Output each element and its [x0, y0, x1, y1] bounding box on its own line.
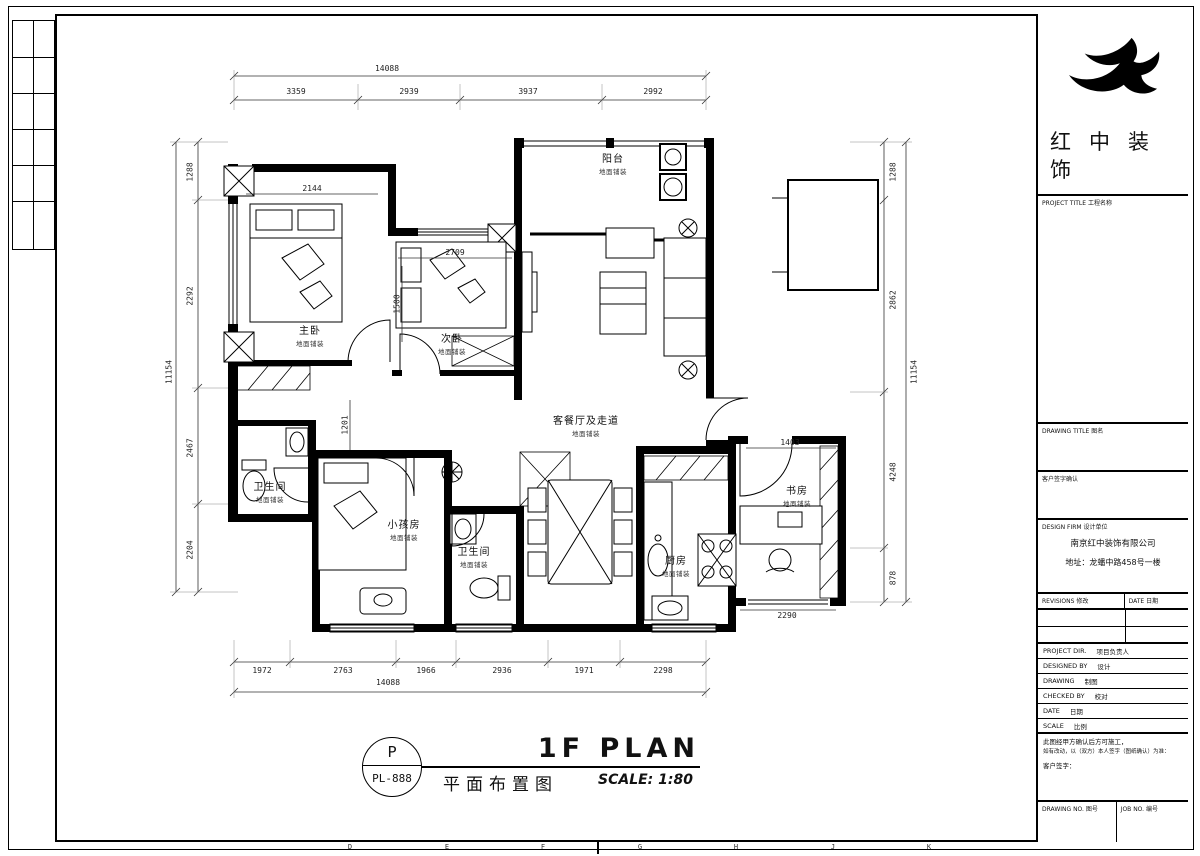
drawing-number: PL-888 — [363, 766, 421, 792]
grid-letter: E — [445, 843, 449, 851]
dim-top-seg: 3937 — [518, 87, 537, 96]
design-firm-label: DESIGN FIRM 设计单位 — [1038, 520, 1188, 531]
dim-interior: 1500 — [393, 294, 402, 313]
furniture — [242, 144, 878, 620]
company-name-logo-line2: 饰 — [1050, 154, 1071, 184]
dim-interior: 1201 — [341, 415, 350, 434]
client-confirm-label: 客户签字确认 — [1038, 472, 1188, 483]
dim-left-seg: 2204 — [186, 540, 195, 559]
info-row-checked-by: CHECKED BY校对 — [1038, 689, 1188, 704]
grid-letter: D — [348, 843, 352, 851]
revision-row — [1038, 610, 1188, 627]
drawing-title-section: DRAWING TITLE 图名 — [1038, 424, 1188, 472]
room-label-bathroom-1: 卫生间地面铺装 — [254, 478, 287, 504]
plan-title-cn: 平面布置图 — [443, 770, 558, 795]
drawing-no-label: DRAWING NO. 图号 — [1038, 802, 1117, 842]
drawing-no-section: DRAWING NO. 图号 JOB NO. 编号 — [1038, 802, 1188, 842]
grid-letter: F — [541, 843, 545, 851]
dim-right-seg: 878 — [889, 571, 898, 585]
info-row-drawing: DRAWING制图 — [1038, 674, 1188, 689]
room-label-kitchen: 厨房地面铺装 — [662, 552, 690, 578]
project-title-label: PROJECT TITLE 工程名称 — [1038, 196, 1188, 207]
company-name-logo-line1: 红中装 — [1050, 126, 1167, 156]
title-block: 红中装 饰 PROJECT TITLE 工程名称 DRAWING TITLE 图… — [1036, 14, 1188, 842]
room-label-balcony: 阳台地面铺装 — [599, 150, 627, 176]
grid-letter: G — [638, 843, 642, 851]
company-address: 地址：龙蟠中路458号一楼 — [1038, 557, 1188, 568]
dim-interior: 2709 — [445, 248, 464, 257]
plan-title: 1F PLAN — [490, 733, 700, 764]
room-label-study: 书房地面铺装 — [783, 482, 811, 508]
dim-left-overall: 11154 — [165, 360, 174, 384]
company-name: 南京红中装饰有限公司 — [1038, 537, 1188, 549]
info-row-scale: SCALE比例 — [1038, 719, 1188, 734]
note-line1: 此图经甲方确认后方可施工， — [1043, 737, 1183, 748]
drawing-sheet: 14088 3359 2939 3937 2992 1972 2763 1966… — [0, 0, 1200, 856]
dim-right-seg: 2862 — [889, 290, 898, 309]
revision-date-label: DATE 日期 — [1125, 594, 1188, 608]
bottom-center-tick — [597, 842, 599, 854]
dim-top-seg: 3359 — [286, 87, 305, 96]
drawing-symbol: P — [363, 738, 421, 766]
revision-row — [1038, 627, 1188, 644]
grid-letter: H — [734, 843, 738, 851]
dim-bottom-seg: 2936 — [492, 666, 511, 675]
job-no-label: JOB NO. 编号 — [1117, 802, 1188, 842]
room-label-second-bedroom: 次卧地面铺装 — [438, 330, 466, 356]
dim-bottom-seg: 2298 — [653, 666, 672, 675]
revisions-header: REVISIONS 修改 DATE 日期 — [1038, 594, 1188, 610]
design-firm-section: DESIGN FIRM 设计单位 南京红中装饰有限公司 地址：龙蟠中路458号一… — [1038, 520, 1188, 594]
dim-top-overall: 14088 — [375, 64, 399, 73]
info-row-date: DATE日期 — [1038, 704, 1188, 719]
room-label-bathroom-2: 卫生间地面铺装 — [458, 543, 491, 569]
logo-section: 红中装 饰 — [1038, 14, 1188, 196]
grid-letter: K — [927, 843, 931, 851]
dim-interior: 2290 — [777, 611, 796, 620]
dim-bottom-seg: 1972 — [252, 666, 271, 675]
room-label-master-bedroom: 主卧地面铺装 — [296, 322, 324, 348]
room-label-living-dining: 客餐厅及走道地面铺装 — [553, 412, 619, 438]
dim-left-seg: 2467 — [186, 438, 195, 457]
drawing-title-label: DRAWING TITLE 图名 — [1038, 424, 1188, 435]
dim-top-seg: 2939 — [399, 87, 418, 96]
dim-bottom-overall: 14088 — [376, 678, 400, 687]
company-logo-icon — [1054, 32, 1174, 120]
dim-interior: 2144 — [302, 184, 321, 193]
dim-bottom-seg: 1971 — [574, 666, 593, 675]
note-line2: 如有改动，以（双方）本人签字（图纸确认）为准： — [1043, 748, 1183, 757]
note-section: 此图经甲方确认后方可施工， 如有改动，以（双方）本人签字（图纸确认）为准： 客户… — [1038, 734, 1188, 802]
dim-interior: 1403 — [780, 438, 799, 447]
dim-left-seg: 2292 — [186, 286, 195, 305]
project-title-section: PROJECT TITLE 工程名称 — [1038, 196, 1188, 424]
title-underline — [390, 766, 700, 768]
dim-top-seg: 2992 — [643, 87, 662, 96]
dim-right-seg: 4248 — [889, 462, 898, 481]
dim-left-seg: 1288 — [186, 162, 195, 181]
info-row-project-dir: PROJECT DIR.项目负责人 — [1038, 644, 1188, 659]
drawing-number-bubble: P PL-888 — [362, 737, 422, 797]
dim-right-overall: 11154 — [910, 360, 919, 384]
dim-bottom-seg: 2763 — [333, 666, 352, 675]
info-rows: PROJECT DIR.项目负责人 DESIGNED BY设计 DRAWING制… — [1038, 644, 1188, 734]
client-confirm-section: 客户签字确认 — [1038, 472, 1188, 520]
client-sign-label: 客户签字： — [1043, 761, 1183, 772]
room-label-kids-room: 小孩房地面铺装 — [388, 516, 421, 542]
revisions-label: REVISIONS 修改 — [1038, 594, 1125, 608]
grid-letter: J — [831, 843, 835, 851]
dim-bottom-seg: 1966 — [416, 666, 435, 675]
info-row-designed-by: DESIGNED BY设计 — [1038, 659, 1188, 674]
dim-right-seg: 1288 — [889, 162, 898, 181]
plan-scale: SCALE: 1:80 — [598, 772, 693, 788]
